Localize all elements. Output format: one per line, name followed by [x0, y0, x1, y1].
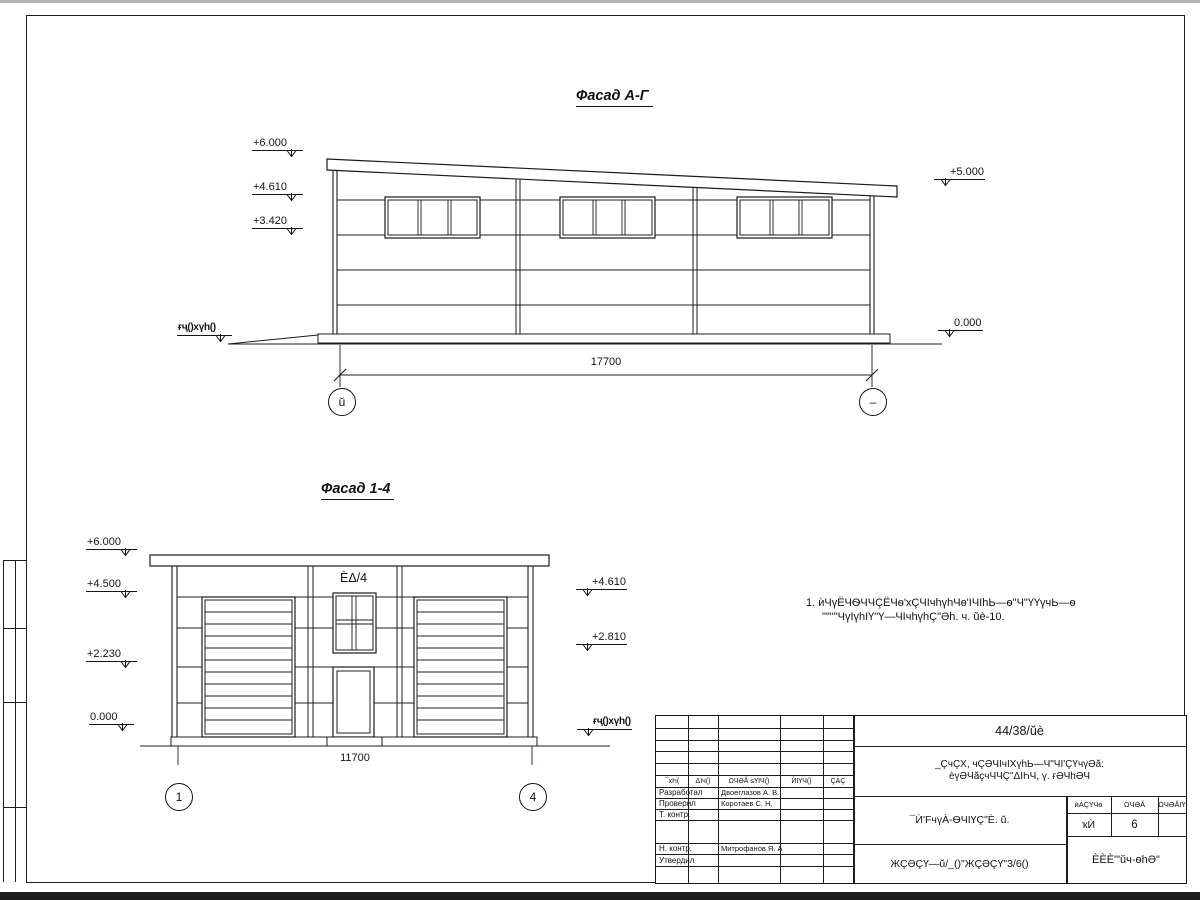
level-mark: +3.420	[252, 215, 303, 229]
plinth	[318, 334, 890, 343]
tb-role-label: Разработал	[656, 787, 721, 798]
window-tag-label: ÈΔ/4	[340, 571, 367, 585]
level-mark: +2.810	[576, 631, 627, 645]
dimension-text: 17700	[536, 356, 676, 368]
stamp-line	[3, 807, 26, 808]
level-arrow-icon	[285, 149, 298, 161]
sheet-bottom-edge	[0, 892, 1200, 900]
roof-band	[327, 159, 897, 197]
roller-door-right	[414, 597, 507, 737]
tb-person-name	[718, 854, 783, 866]
level-mark: 0.000	[89, 711, 134, 725]
axis-label: 4	[530, 790, 537, 804]
tb-stage-value: ҡЍ	[1066, 813, 1111, 836]
tb-project-name: _ÇчÇХ, чÇӘЧIчIХүhЬ—Ч"ЧI'ÇҮчүӘă: èүӘЧăçчЧ…	[853, 746, 1186, 796]
axis-label: ŭ	[339, 395, 346, 409]
level-arrow-icon	[119, 660, 132, 672]
stamp-line	[3, 702, 26, 703]
tb-person-name: Митрофанов Я. А.	[718, 843, 783, 854]
tb-stage-header: ѝȦÇҮЧѳ	[1066, 796, 1111, 813]
tb-line	[656, 751, 853, 752]
level-arrow-icon	[119, 590, 132, 602]
level-arrow-icon	[581, 588, 594, 600]
stamp-line	[15, 560, 16, 882]
tb-sheets-total	[1158, 813, 1186, 836]
level-mark: +6.000	[86, 536, 137, 550]
level-arrow-icon	[285, 227, 298, 239]
facade-14-title: Фасад 1-4	[321, 481, 394, 500]
tb-header-cell: ЍIҮЧ()	[780, 775, 823, 787]
axis-label: 1	[176, 790, 183, 804]
ground-level-mark: ғҷ()xүh()	[177, 322, 232, 336]
title-block: ¯хҺ( ΔIч() ΩЧӘĂ ≤ҮIЧ() ЍIҮЧ() ÇȦÇ Разраб…	[655, 715, 1187, 884]
ground-level-mark: ғҷ()xүh()	[577, 716, 632, 730]
level-arrow-icon	[943, 329, 956, 341]
axis-marker-a: ŭ	[328, 388, 356, 416]
stamp-line	[3, 560, 4, 882]
tb-stage-header: ΩЧӘĂIҮ	[1158, 796, 1186, 813]
tb-person-name: Двоеглазов А. В.	[718, 787, 783, 798]
drawing-sheet: Фасад А-Г +6.000	[0, 0, 1200, 900]
level-arrow-icon	[214, 334, 227, 346]
tb-header-cell: ΩЧӘĂ ≤ҮIЧ()	[718, 775, 780, 787]
facade-ag-linework	[220, 148, 960, 410]
tb-stage-header: ΩЧӘĂ	[1111, 796, 1158, 813]
roof-slab	[150, 555, 549, 566]
tb-role-label: Т. контр.	[656, 809, 721, 820]
axis-marker-4: 4	[519, 783, 547, 811]
note-line: """"ЧүIүhIҮ"Ү—ЧIчhүhÇ"Әh. ч. ŭè-10.	[822, 611, 1076, 625]
tb-project-line: èүӘЧăçчЧЧÇ"ΔIҺЧ, ү. ғӘЧhӘЧ	[949, 771, 1090, 783]
tb-bottom-doc: ЖÇӘÇҮ—ŭ/_()"ЖÇӘÇҮ"3/6()	[853, 844, 1066, 883]
roller-door-left	[202, 597, 295, 737]
level-mark: 0.000	[938, 317, 983, 331]
tb-header-cell: ¯хҺ(	[656, 775, 688, 787]
level-mark: +4.610	[576, 576, 627, 590]
level-mark: +5.000	[934, 166, 985, 180]
tb-line	[656, 728, 853, 729]
axis-label: –	[870, 395, 877, 409]
tb-project-line: _ÇчÇХ, чÇӘЧIчIХүhЬ—Ч"ЧI'ÇҮчүӘă:	[935, 759, 1104, 771]
tb-line	[656, 866, 853, 867]
tb-sheet-number: 6	[1111, 813, 1158, 836]
sheet-top-edge	[0, 0, 1200, 3]
level-arrow-icon	[581, 643, 594, 655]
tb-header-cell: ÇȦÇ	[823, 775, 853, 787]
level-arrow-icon	[285, 193, 298, 205]
tb-line	[656, 763, 853, 764]
window-strip	[385, 197, 832, 238]
tb-company: ÈÈÈ'"ŭч-ѳhӘ"	[1066, 836, 1186, 883]
corner-posts	[333, 170, 874, 334]
level-mark: +2.230	[86, 648, 137, 662]
tb-line	[656, 820, 853, 821]
center-window	[333, 593, 376, 653]
level-arrow-icon	[939, 178, 952, 190]
general-note: 1. ѝЧүЁЧѲЧЧÇЁЧѳ'хÇЧIчhүhЧѳ'IЧIhЬ—ѳ"Ч"ҮҮү…	[806, 597, 1076, 624]
tb-person-name	[718, 809, 783, 820]
level-mark: +6.000	[252, 137, 303, 151]
note-line: 1. ѝЧүЁЧѲЧЧÇЁЧѳ'хÇЧIчhүhЧѳ'IЧIhЬ—ѳ"Ч"ҮҮү…	[806, 597, 1076, 611]
tb-role-label: Н. контр.	[656, 843, 721, 854]
tb-person-name: Коротаев С. Н.	[718, 798, 783, 809]
axis-marker-1: 1	[165, 783, 193, 811]
stamp-line	[3, 560, 26, 561]
tb-role-label: Проверил	[656, 798, 721, 809]
facade-14-linework	[130, 550, 650, 765]
level-arrow-icon	[116, 723, 129, 735]
tb-line	[823, 716, 824, 883]
level-mark: +4.610	[252, 181, 303, 195]
level-mark: +4.500	[86, 578, 137, 592]
stamp-line	[3, 628, 26, 629]
level-arrow-icon	[582, 728, 595, 740]
tb-role-label: Утвердил	[656, 854, 721, 866]
dimension-text: 11700	[285, 752, 425, 764]
tb-header-cell: ΔIч()	[688, 775, 718, 787]
tb-doc-number: 44/38/ŭè	[853, 716, 1186, 746]
tb-line	[656, 740, 853, 741]
level-arrow-icon	[119, 548, 132, 560]
axis-marker-g: –	[859, 388, 887, 416]
center-door	[327, 667, 382, 746]
facade-ag-title: Фасад А-Г	[576, 88, 653, 107]
tb-drawing-title: ¯Ѝ'FчүȦ-ѲЧIҮÇ"È. ŭ.	[853, 796, 1066, 844]
